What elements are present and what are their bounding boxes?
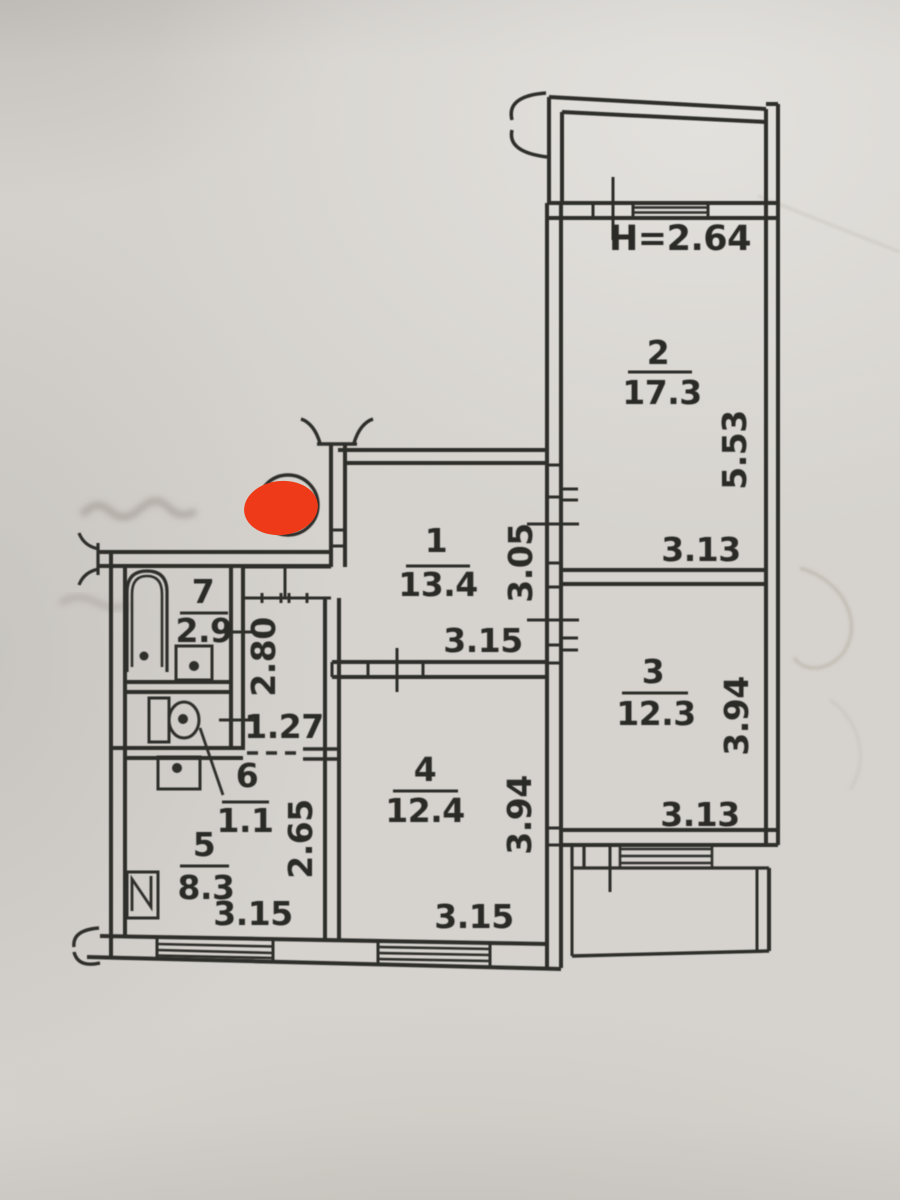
built-in-closet bbox=[243, 567, 331, 603]
wall-opening-flare-balcony bbox=[511, 93, 547, 157]
room-5-width-dim: 3.15 bbox=[213, 894, 292, 933]
room-1-width-dim: 3.15 bbox=[443, 621, 522, 660]
room1-room4-joints bbox=[332, 648, 423, 692]
room6-leader-line bbox=[200, 728, 223, 795]
room-4-depth-dim: 3.94 bbox=[500, 775, 539, 854]
kitchen-sink-icon bbox=[158, 757, 200, 789]
room-2-depth-dim: 5.53 bbox=[715, 410, 754, 489]
room-4-area: 12.4 bbox=[385, 791, 464, 830]
faded-stamp-mark-2 bbox=[60, 597, 130, 607]
plan-ink: H=2.64 1 13.4 3.05 3.15 2 17.3 5.53 3.13… bbox=[74, 93, 778, 969]
room-3-depth-dim: 3.94 bbox=[717, 676, 756, 755]
room-1-area: 13.4 bbox=[398, 565, 477, 604]
labels: H=2.64 1 13.4 3.05 3.15 2 17.3 5.53 3.13… bbox=[176, 219, 756, 936]
room-5-number: 5 bbox=[193, 825, 215, 864]
stove-icon bbox=[127, 872, 158, 918]
hallway-width-dim: 1.27 bbox=[244, 707, 323, 746]
room-7-area: 2.9 bbox=[176, 611, 233, 650]
room-6-area: 1.1 bbox=[217, 801, 274, 840]
floor-plan-canvas: H=2.64 1 13.4 3.05 3.15 2 17.3 5.53 3.13… bbox=[0, 0, 900, 1200]
faded-stamp-mark bbox=[82, 501, 196, 517]
room-3-number: 3 bbox=[642, 652, 664, 691]
wall-opening-flare-entrance bbox=[301, 419, 373, 444]
ceiling-height-label: H=2.64 bbox=[609, 219, 751, 259]
entrance-wall-joints bbox=[331, 530, 345, 546]
room-2-area: 17.3 bbox=[622, 373, 701, 412]
room-2-width-dim: 3.13 bbox=[661, 530, 740, 569]
room-3-area: 12.3 bbox=[616, 694, 695, 733]
window-balcony-bottom bbox=[620, 846, 712, 868]
room-2-number: 2 bbox=[647, 333, 669, 372]
wall-opening-flare-left bbox=[79, 533, 99, 585]
bottom-balcony bbox=[572, 845, 769, 956]
bathtub-icon bbox=[127, 571, 167, 672]
balcony-top-outer bbox=[549, 97, 766, 109]
window-room2 bbox=[633, 208, 708, 213]
balcony-top-inner bbox=[562, 112, 766, 122]
room-6-number: 6 bbox=[236, 756, 258, 795]
room-3-width-dim: 3.13 bbox=[660, 795, 739, 834]
scanned-floor-plan-photo: H=2.64 1 13.4 3.05 3.15 2 17.3 5.53 3.13… bbox=[0, 0, 900, 1200]
toilet-icon bbox=[149, 698, 199, 742]
paper-scratch bbox=[794, 568, 851, 668]
paper-crease-2 bbox=[830, 700, 860, 790]
entrance-marker bbox=[241, 477, 320, 538]
room-4-number: 4 bbox=[414, 750, 436, 789]
room-7-number: 7 bbox=[192, 572, 214, 611]
hallway-depth-dim: 2.80 bbox=[244, 617, 283, 696]
room-1-depth-dim: 3.05 bbox=[501, 523, 540, 602]
bathroom-sink-icon bbox=[176, 646, 212, 680]
room-5-depth-dim: 2.65 bbox=[281, 799, 320, 878]
room-1-number: 1 bbox=[425, 521, 447, 560]
room-4-width-dim: 3.15 bbox=[434, 897, 513, 936]
